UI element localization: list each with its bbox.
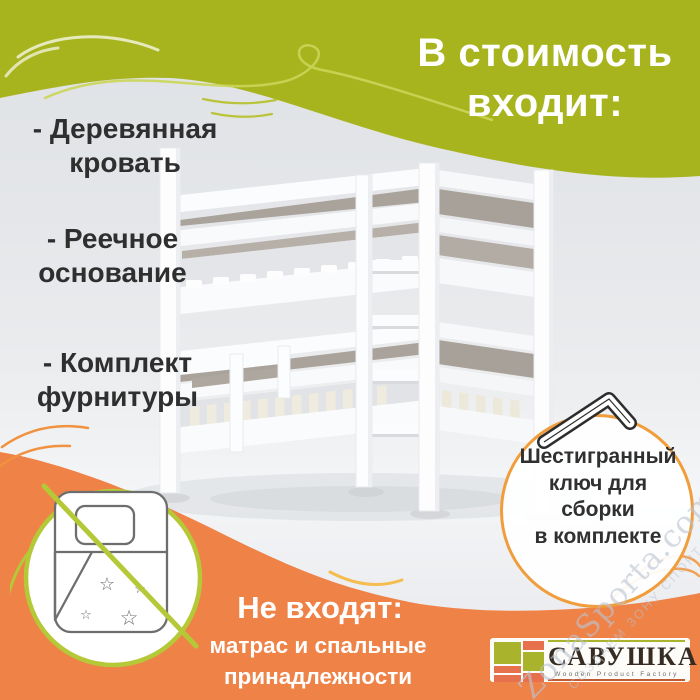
list-item: - Реечное основание bbox=[0, 222, 225, 290]
list-item: - Деревянная кровать bbox=[0, 112, 250, 180]
not-included-detail: матрас и спальные bbox=[168, 633, 468, 659]
yellow-swirl-line bbox=[330, 572, 402, 585]
page-title-line2: входит: bbox=[390, 78, 700, 128]
not-included-heading: Не входят: bbox=[170, 590, 470, 626]
logo-mosaic-icon bbox=[494, 641, 546, 679]
hex-key-badge-text: Шестигранный ключ для сборки в комплекте bbox=[504, 444, 692, 550]
not-included-detail: принадлежности bbox=[168, 664, 468, 690]
svg-text:☆: ☆ bbox=[99, 574, 115, 595]
brand-logo: САВУШКА Wooden Product Factory bbox=[490, 638, 690, 682]
page-title-line1: В стоимость bbox=[390, 28, 700, 78]
svg-text:☆: ☆ bbox=[120, 606, 139, 630]
logo-divider bbox=[548, 679, 685, 681]
logo-tagline: Wooden Product Factory bbox=[548, 671, 685, 678]
promo-image: В стоимость входит: - Деревянная кровать… bbox=[0, 0, 700, 700]
logo-brand-name: САВУШКА bbox=[548, 643, 685, 670]
svg-text:☆: ☆ bbox=[80, 608, 92, 623]
page-title: В стоимость входит: bbox=[390, 28, 700, 128]
